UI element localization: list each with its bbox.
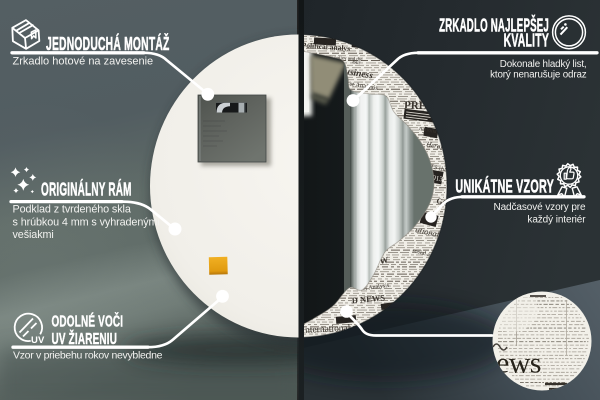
svg-text:ktorý nenarušuje odraz: ktorý nenarušuje odraz — [490, 70, 587, 81]
svg-text:UNIKÁTNE VZORY: UNIKÁTNE VZORY — [455, 177, 554, 198]
svg-text:ODOLNÉ VOČI: ODOLNÉ VOČI — [52, 312, 124, 330]
svg-text:JEDNODUCHÁ MONTÁŽ: JEDNODUCHÁ MONTÁŽ — [46, 33, 170, 55]
svg-text:UV ŽIARENIU: UV ŽIARENIU — [52, 330, 118, 348]
svg-text:ORIGINÁLNY RÁM: ORIGINÁLNY RÁM — [41, 179, 132, 200]
svg-text:vešiakmi: vešiakmi — [13, 229, 54, 241]
svg-text:Zrkadlo hotové na zavesenie: Zrkadlo hotové na zavesenie — [13, 56, 154, 68]
svg-text:Vzor v priebehu rokov nevybled: Vzor v priebehu rokov nevybledne — [13, 350, 163, 362]
svg-text:s hrúbkou 4 mm s vyhradenými: s hrúbkou 4 mm s vyhradenými — [13, 216, 160, 228]
svg-text:Nadčasové vzory pre: Nadčasové vzory pre — [493, 202, 586, 213]
svg-text:UV: UV — [31, 335, 45, 346]
svg-text:KVALITY: KVALITY — [504, 30, 549, 51]
svg-text:Dokonale hladký list,: Dokonale hladký list, — [500, 59, 587, 70]
svg-text:Podklad z tvrdeného skla: Podklad z tvrdeného skla — [13, 204, 131, 216]
svg-text:každý interiér: každý interiér — [527, 214, 586, 225]
